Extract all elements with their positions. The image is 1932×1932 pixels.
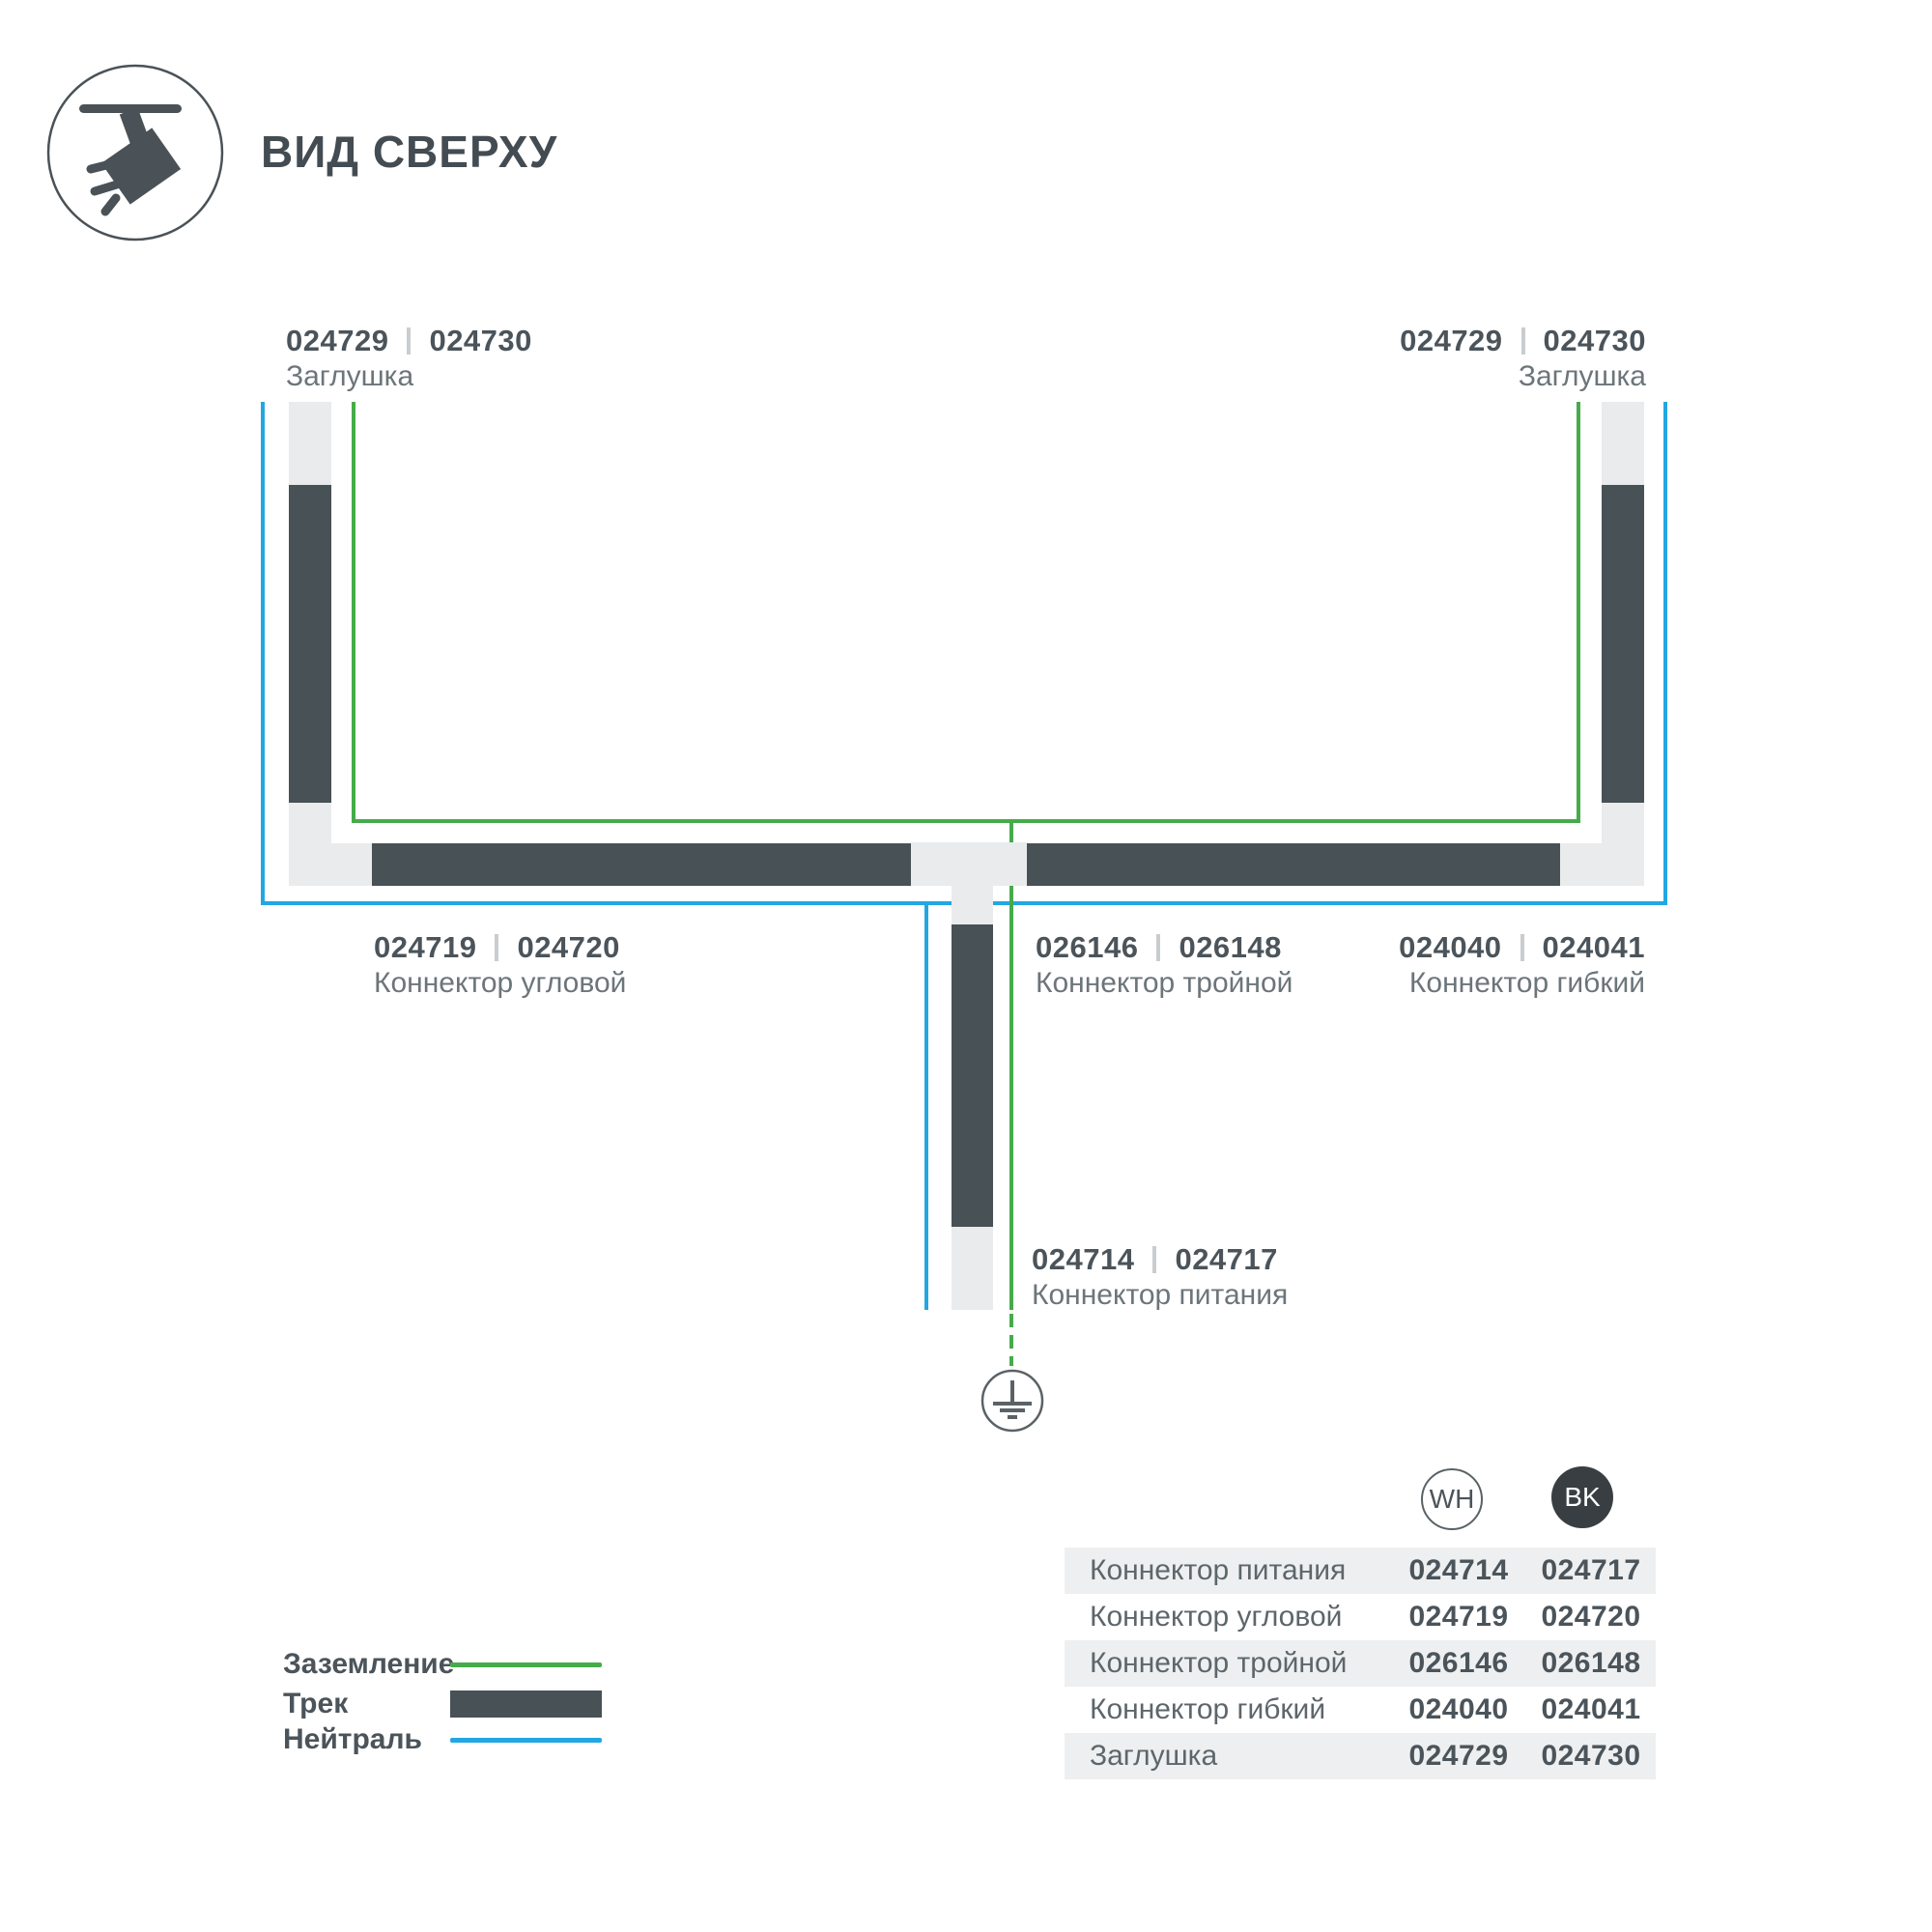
corner-connector-left	[289, 803, 331, 886]
power-connector	[952, 1227, 993, 1310]
ground-dash	[1009, 1356, 1013, 1366]
legend-label: Заземление	[283, 1648, 450, 1681]
part-name: Коннектор тройной	[1036, 969, 1293, 998]
part-code-bk: 024730	[429, 324, 531, 358]
code-separator	[1521, 327, 1525, 355]
ground-line-drop	[1009, 819, 1013, 1310]
ground-line-path	[352, 402, 1580, 823]
row-code-wh: 026146	[1391, 1647, 1526, 1680]
row-code-wh: 024719	[1391, 1601, 1526, 1634]
corner-connector-left	[331, 843, 372, 886]
earth-ground-icon	[980, 1368, 1045, 1434]
row-code-wh: 024729	[1391, 1740, 1526, 1773]
parts-table: Коннектор питания 024714 024717 Коннекто…	[1065, 1548, 1656, 1779]
label-corner-connector: 024719 024720 Коннектор угловой	[374, 932, 626, 998]
wh-label: WH	[1430, 1484, 1475, 1515]
triple-connector	[952, 886, 993, 924]
part-code-bk: 026148	[1179, 930, 1281, 965]
label-triple-connector: 026146 026148 Коннектор тройной	[1036, 932, 1293, 998]
code-separator	[1156, 934, 1160, 961]
end-cap-right	[1602, 402, 1644, 485]
part-code-bk: 024720	[517, 930, 619, 965]
row-name: Коннектор гибкий	[1065, 1693, 1391, 1726]
code-separator	[1520, 934, 1524, 961]
green-line-swatch	[450, 1662, 602, 1667]
track-segment-left	[289, 485, 331, 803]
part-code-wh: 024729	[286, 324, 388, 358]
row-code-wh: 024040	[1391, 1693, 1526, 1726]
ground-dash	[1009, 1314, 1013, 1327]
table-row: Коннектор питания 024714 024717	[1065, 1548, 1656, 1594]
part-code-wh: 024719	[374, 930, 476, 965]
part-name: Заглушка	[286, 362, 532, 391]
legend-label: Нейтраль	[283, 1723, 450, 1756]
part-code-wh: 024729	[1400, 324, 1502, 358]
triple-connector	[911, 842, 1027, 886]
end-cap-left	[289, 402, 331, 485]
label-end-cap-right: 024729 024730 Заглушка	[1400, 326, 1646, 391]
table-row: Коннектор угловой 024719 024720	[1065, 1594, 1656, 1640]
part-code-bk: 024717	[1175, 1242, 1277, 1277]
table-row: Коннектор гибкий 024040 024041	[1065, 1687, 1656, 1733]
part-code-wh: 024714	[1032, 1242, 1134, 1277]
blue-line-swatch	[450, 1738, 602, 1743]
legend-item-ground: Заземление	[283, 1647, 602, 1682]
row-code-wh: 024714	[1391, 1554, 1526, 1587]
legend-label: Трек	[283, 1688, 450, 1720]
table-row: Заглушка 024729 024730	[1065, 1733, 1656, 1779]
part-name: Коннектор угловой	[374, 969, 626, 998]
part-code-wh: 024040	[1399, 930, 1501, 965]
row-name: Коннектор питания	[1065, 1554, 1391, 1587]
track-segment-right	[1602, 485, 1644, 803]
part-name: Заглушка	[1400, 362, 1646, 391]
legend-item-neutral: Нейтраль	[283, 1722, 602, 1757]
row-code-bk: 024730	[1526, 1740, 1656, 1773]
code-separator	[495, 934, 498, 961]
part-name: Коннектор гибкий	[1399, 969, 1645, 998]
code-separator	[407, 327, 411, 355]
color-badge-black: BK	[1551, 1466, 1613, 1528]
label-flex-connector: 024040 024041 Коннектор гибкий	[1399, 932, 1645, 998]
row-name: Коннектор угловой	[1065, 1601, 1391, 1634]
row-name: Коннектор тройной	[1065, 1647, 1391, 1680]
track-segment-horizontal-left	[372, 843, 911, 886]
spotlight-track-icon	[44, 62, 226, 243]
label-power-connector: 024714 024717 Коннектор питания	[1032, 1244, 1288, 1310]
part-name: Коннектор питания	[1032, 1281, 1288, 1310]
part-code-bk: 024730	[1544, 324, 1646, 358]
top-view-diagram-page: ВИД СВЕРХУ 024729 024730 Заглушка	[0, 0, 1932, 1932]
track-segment-horizontal-right	[1027, 843, 1560, 886]
bk-label: BK	[1564, 1482, 1600, 1513]
part-code-wh: 026146	[1036, 930, 1138, 965]
flex-connector-right	[1602, 803, 1644, 886]
row-code-bk: 024717	[1526, 1554, 1656, 1587]
track-segment-center	[952, 924, 993, 1227]
track-bar-swatch	[450, 1690, 602, 1718]
row-code-bk: 024720	[1526, 1601, 1656, 1634]
row-code-bk: 026148	[1526, 1647, 1656, 1680]
table-row: Коннектор тройной 026146 026148	[1065, 1640, 1656, 1687]
code-separator	[1152, 1246, 1156, 1273]
neutral-line-drop	[924, 901, 928, 1310]
ground-dash	[1009, 1335, 1013, 1349]
legend-item-track: Трек	[283, 1687, 602, 1721]
label-end-cap-left: 024729 024730 Заглушка	[286, 326, 532, 391]
flex-connector-right	[1560, 843, 1602, 886]
color-badge-white: WH	[1421, 1468, 1483, 1530]
row-code-bk: 024041	[1526, 1693, 1656, 1726]
row-name: Заглушка	[1065, 1740, 1391, 1773]
page-title: ВИД СВЕРХУ	[261, 126, 557, 178]
part-code-bk: 024041	[1543, 930, 1645, 965]
